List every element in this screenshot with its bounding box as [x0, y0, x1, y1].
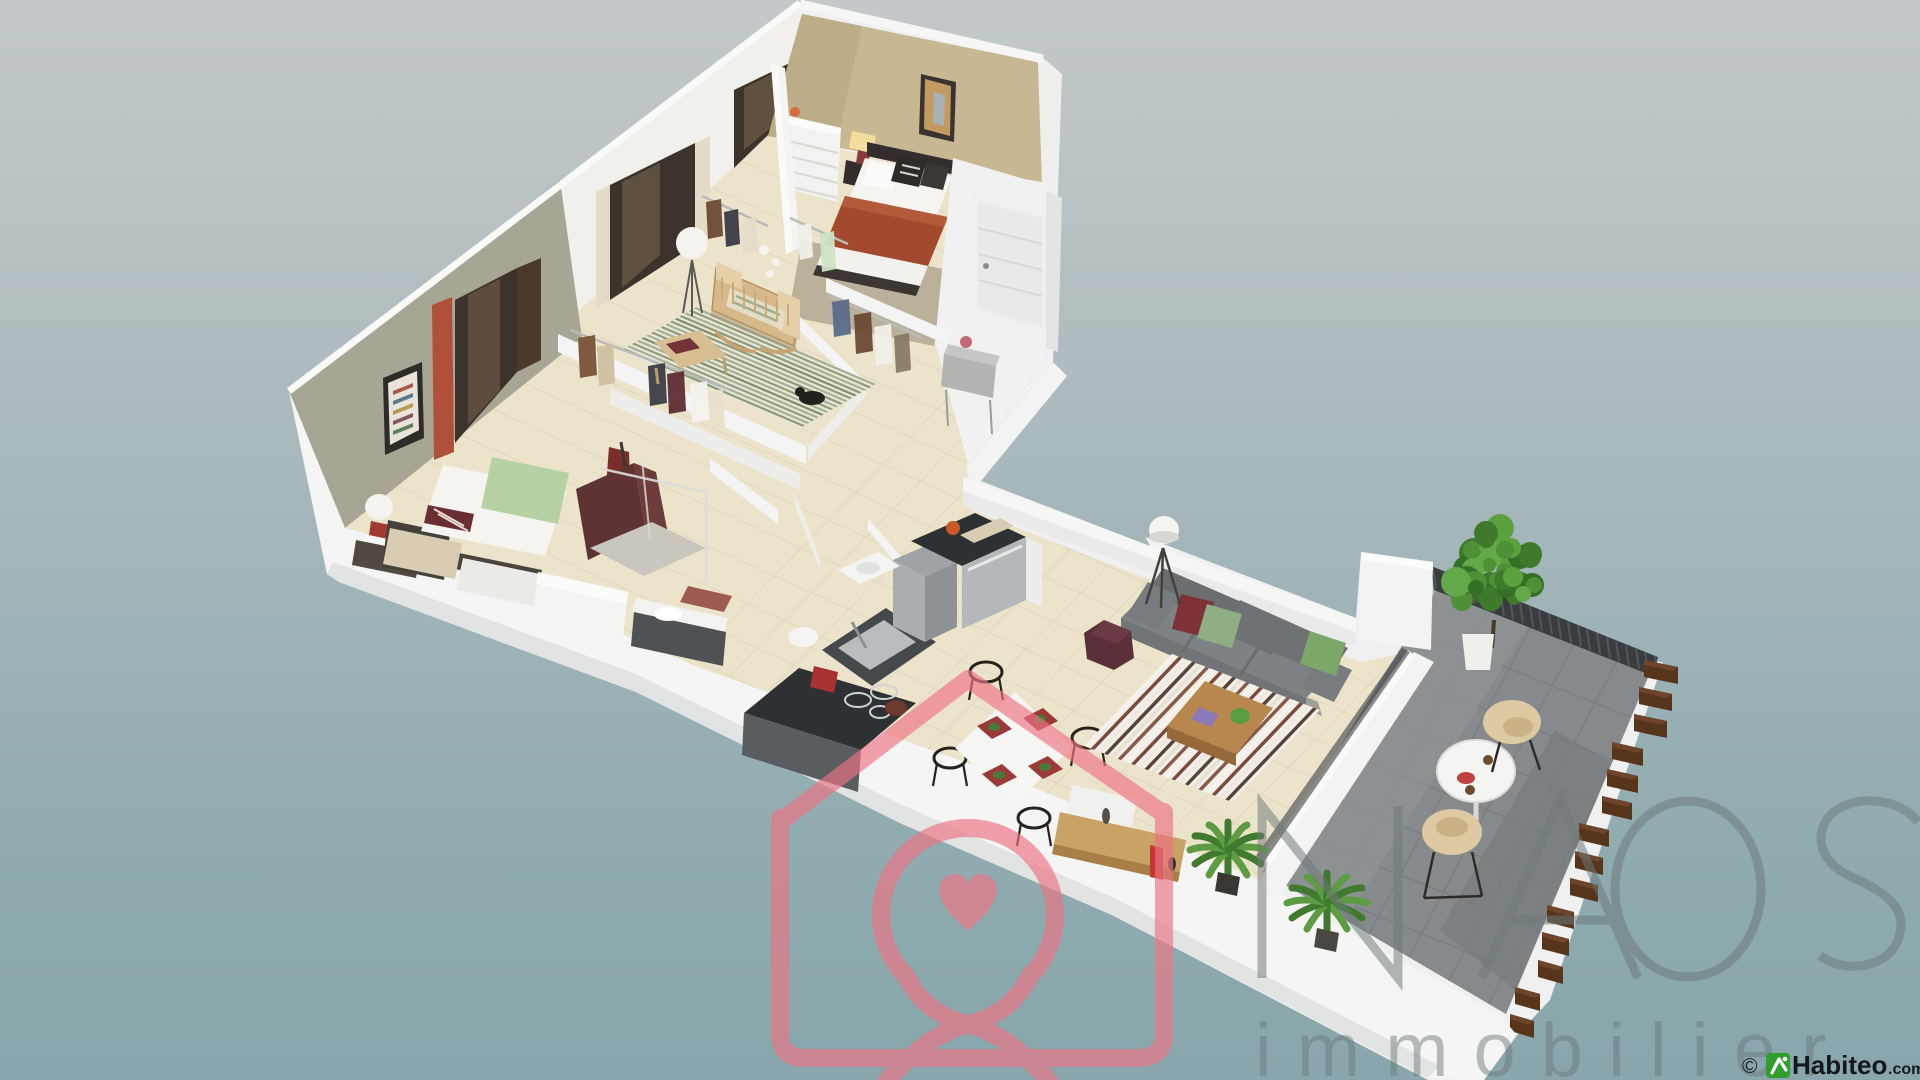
svg-text:.com: .com: [1888, 1061, 1920, 1078]
svg-text:Habiteo: Habiteo: [1792, 1050, 1887, 1080]
svg-text:immobilier: immobilier: [1255, 1008, 1851, 1080]
svg-text:©: ©: [1742, 1055, 1758, 1078]
